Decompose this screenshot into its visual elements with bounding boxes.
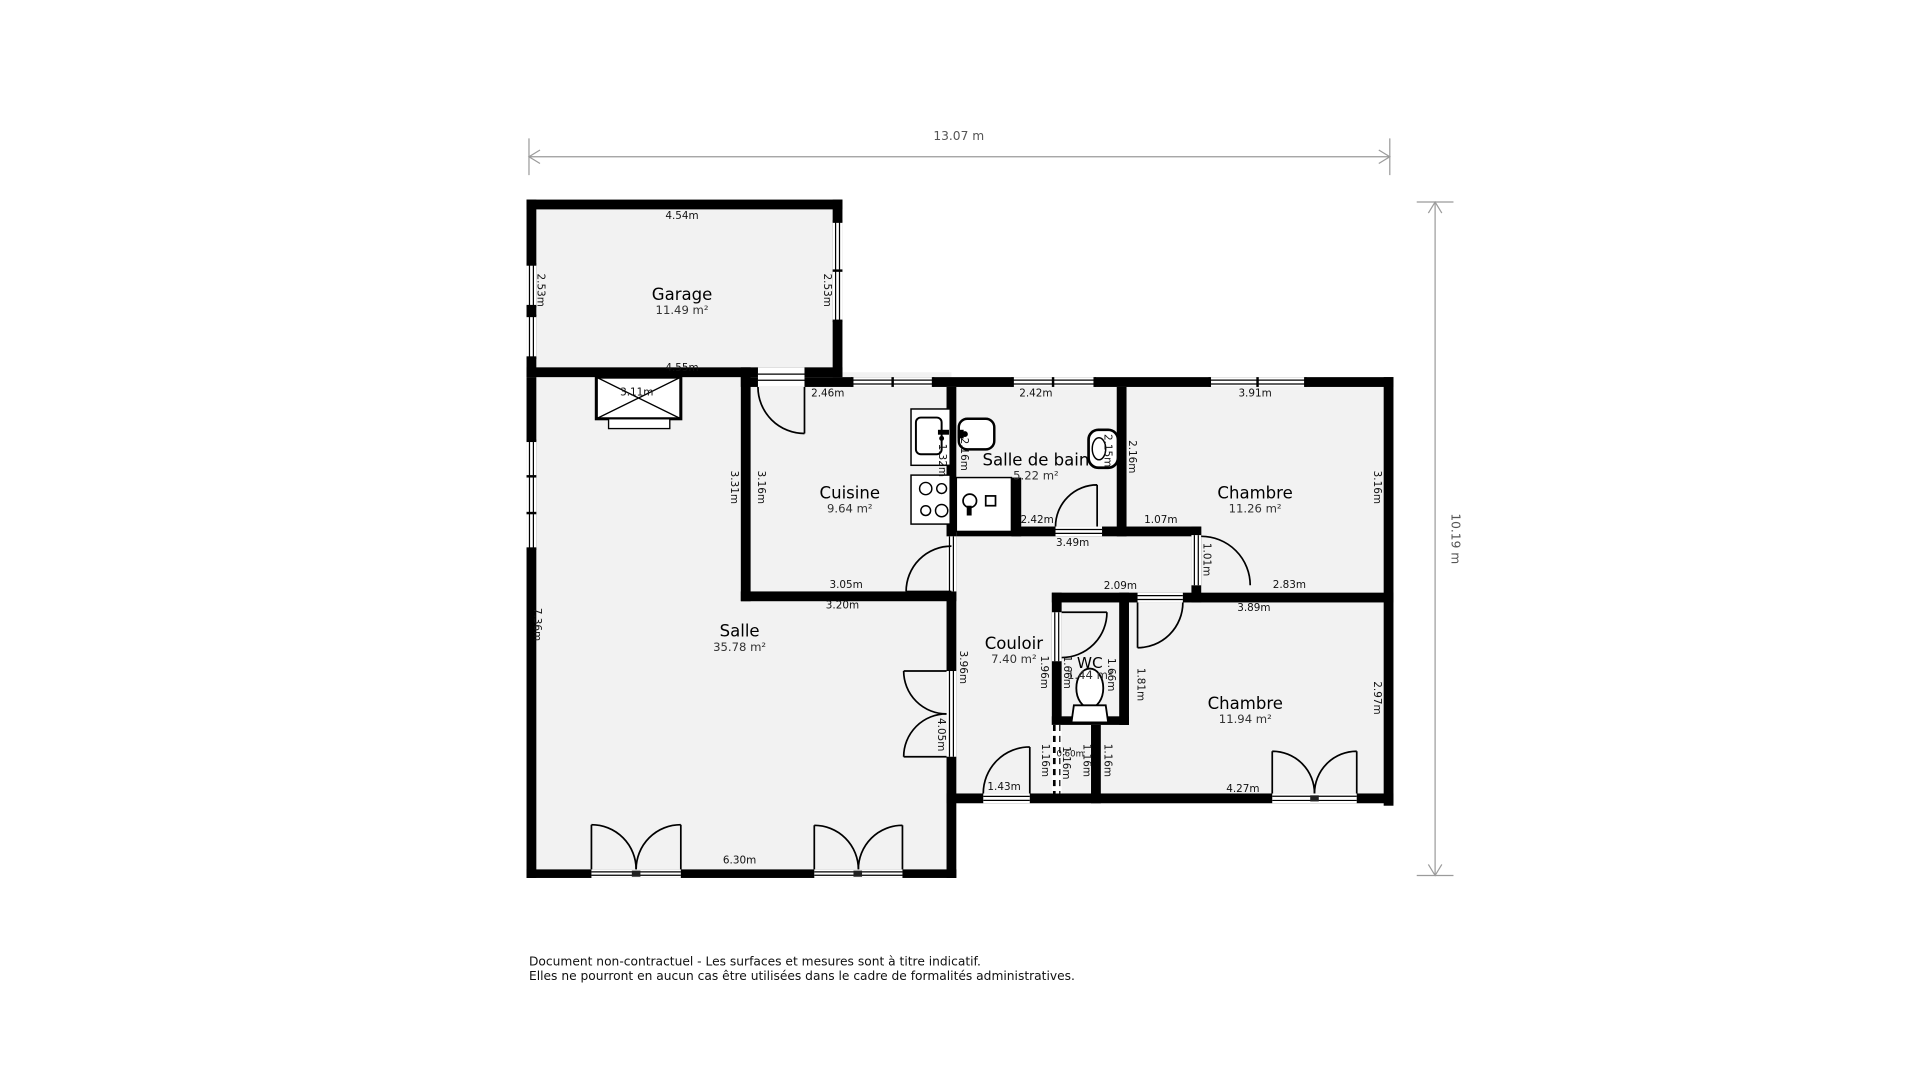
dim-label: 2.16m: [958, 438, 970, 471]
room-area-chambre-1: 11.26 m²: [1229, 503, 1282, 516]
room-area-cuisine: 9.64 m²: [827, 503, 873, 516]
dim-label: 1.16m: [1080, 744, 1092, 777]
floorplan-canvas: 13.07 m 10.19 m Garage11.49 m²Cuisine9.6…: [0, 0, 1920, 1080]
room-label-couloir: Couloir: [985, 634, 1043, 654]
dim-label: 1.81m: [1134, 668, 1146, 701]
dim-label: 1.32m: [936, 444, 948, 477]
chimney: [596, 377, 680, 428]
dim-label: 3.05m: [829, 579, 862, 591]
room-area-chambre-2: 11.94 m²: [1219, 713, 1272, 726]
overall-height-label: 10.19 m: [1448, 513, 1461, 564]
dim-label: 2.53m: [820, 274, 832, 307]
overall-width-label: 13.07 m: [933, 130, 984, 143]
room-label-chambre-1: Chambre: [1217, 484, 1292, 504]
dim-label: 3.31m: [727, 471, 739, 504]
dim-label: 2.83m: [1273, 579, 1306, 591]
dim-label: 2.15m: [1101, 434, 1113, 467]
floorplan-drawing: [0, 0, 1920, 1080]
dim-label: 3.91m: [1238, 388, 1271, 400]
room-label-salle-de-bain: Salle de bain: [982, 451, 1089, 471]
dim-label: 1.96m: [1037, 656, 1049, 689]
dim-label: 1.01m: [1200, 543, 1212, 576]
room-area-garage: 11.49 m²: [656, 304, 709, 317]
room-area-couloir: 7.40 m²: [991, 653, 1037, 666]
dim-label: 3.20m: [826, 600, 859, 612]
dim-label: 1.43m: [987, 781, 1020, 793]
disclaimer-line-1: Document non-contractuel - Les surfaces …: [529, 956, 981, 969]
dim-label: 1.66m: [1104, 658, 1116, 691]
dim-label: 3.49m: [1056, 538, 1089, 550]
room-label-garage: Garage: [652, 285, 713, 305]
dim-label: 3.16m: [1370, 471, 1382, 504]
stove: [911, 475, 950, 524]
dim-label: 3.89m: [1237, 602, 1270, 614]
dim-label: 2.42m: [1019, 388, 1052, 400]
room-label-cuisine: Cuisine: [820, 484, 880, 504]
dim-label: 4.05m: [934, 718, 946, 751]
dim-label: 6.30m: [723, 855, 756, 867]
dim-label: 4.54m: [665, 211, 698, 223]
dim-label: 3.96m: [956, 651, 968, 684]
disclaimer-line-2: Elles ne pourront en aucun cas être util…: [529, 970, 1075, 983]
dim-label: 1.16m: [1101, 744, 1113, 777]
room-label-chambre-2: Chambre: [1208, 694, 1283, 714]
shower: [956, 478, 1011, 532]
dim-label: 1.16m: [1038, 744, 1050, 777]
dim-label: 1.07m: [1144, 514, 1177, 526]
room-area-salle-de-bain: 5.22 m²: [1013, 470, 1059, 483]
room-label-salle: Salle: [720, 622, 760, 642]
floorplan-page: 13.07 m 10.19 m Garage11.49 m²Cuisine9.6…: [0, 0, 1920, 1080]
dim-label: 4.27m: [1226, 784, 1259, 796]
dim-label: 2.53m: [534, 274, 546, 307]
dim-label: 1.16m: [1059, 746, 1071, 779]
dim-label: 3.16m: [754, 471, 766, 504]
room-area-salle: 35.78 m²: [713, 641, 766, 654]
dim-label: 1.66m: [1060, 656, 1072, 689]
dim-label: 2.09m: [1104, 580, 1137, 592]
dim-label: 4.55m: [665, 362, 698, 374]
dim-label: 7.36m: [530, 608, 542, 641]
dim-label: 2.97m: [1370, 681, 1382, 714]
dim-label: 2.16m: [1125, 440, 1137, 473]
dim-label: 3.11m: [620, 387, 653, 399]
dim-label: 2.46m: [811, 388, 844, 400]
dim-label: 2.42m: [1020, 514, 1053, 526]
